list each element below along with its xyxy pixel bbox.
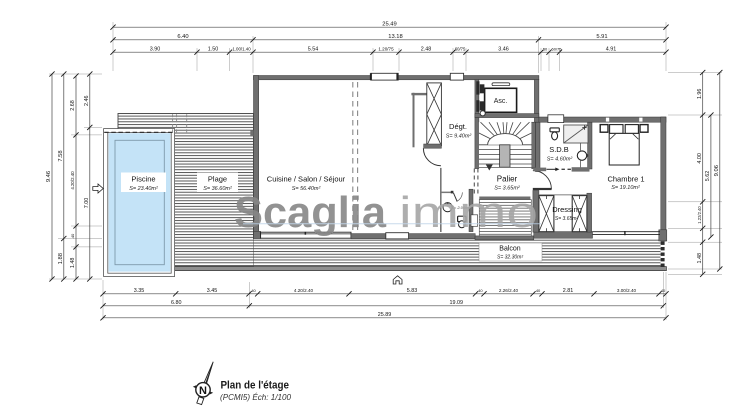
- svg-text:2.48: 2.48: [421, 46, 432, 52]
- svg-text:.40: .40: [660, 288, 666, 293]
- svg-text:Piscine: Piscine: [131, 175, 155, 184]
- svg-text:.40: .40: [70, 233, 75, 239]
- svg-text:3.00/2.40: 3.00/2.40: [617, 288, 637, 293]
- svg-text:3.45: 3.45: [207, 288, 218, 294]
- svg-text:7.58: 7.58: [58, 150, 64, 161]
- svg-text:3.46: 3.46: [498, 46, 509, 52]
- svg-text:9.06: 9.06: [714, 165, 720, 176]
- svg-text:1.50: 1.50: [208, 46, 219, 52]
- svg-text:1.48: 1.48: [70, 258, 76, 269]
- svg-text:Plage: Plage: [208, 175, 227, 184]
- svg-text:1.48: 1.48: [697, 253, 703, 264]
- svg-text:Asc.: Asc.: [494, 98, 508, 105]
- svg-text:.50: .50: [542, 46, 548, 51]
- svg-text:5.91: 5.91: [596, 34, 607, 40]
- svg-text:S= 32.30m²: S= 32.30m²: [497, 255, 523, 261]
- svg-text:5.83: 5.83: [407, 288, 418, 294]
- svg-text:6.40: 6.40: [177, 34, 188, 40]
- svg-text:.40: .40: [477, 288, 483, 293]
- svg-text:9.46: 9.46: [46, 171, 52, 182]
- svg-text:.60/75: .60/75: [454, 46, 466, 51]
- svg-text:4.20/2.40: 4.20/2.40: [294, 288, 314, 293]
- svg-text:2.81: 2.81: [563, 288, 574, 294]
- svg-text:Dégt.: Dégt.: [449, 122, 467, 131]
- svg-text:1.96: 1.96: [697, 89, 703, 100]
- svg-text:N: N: [199, 385, 207, 397]
- svg-text:(PCMI5) Éch: 1/100: (PCMI5) Éch: 1/100: [220, 393, 292, 402]
- svg-text:6.80: 6.80: [171, 300, 182, 306]
- svg-text:7.00: 7.00: [84, 198, 90, 209]
- svg-text:Plan de l'étage: Plan de l'étage: [221, 380, 290, 392]
- svg-text:5.54: 5.54: [308, 46, 319, 52]
- svg-text:19.09: 19.09: [450, 300, 464, 306]
- svg-text:4.20/2.40: 4.20/2.40: [70, 171, 75, 190]
- svg-text:5.62: 5.62: [705, 171, 711, 182]
- svg-text:.40: .40: [535, 288, 541, 293]
- svg-text:60/75: 60/75: [551, 46, 562, 51]
- svg-text:1.22/2.40: 1.22/2.40: [697, 206, 702, 224]
- svg-text:Scaglia: Scaglia: [234, 188, 387, 237]
- svg-text:S= 36.60m²: S= 36.60m²: [203, 186, 232, 192]
- svg-text:2.46: 2.46: [84, 95, 90, 106]
- svg-text:4.91: 4.91: [606, 46, 617, 52]
- svg-text:S= 4.60m²: S= 4.60m²: [547, 156, 573, 162]
- svg-text:3.90: 3.90: [150, 46, 161, 52]
- svg-text:S= 19.10m²: S= 19.10m²: [611, 185, 640, 191]
- svg-text:Balcon: Balcon: [499, 246, 521, 253]
- svg-text:S= 9.40m²: S= 9.40m²: [446, 134, 472, 140]
- svg-text:13.18: 13.18: [388, 34, 403, 40]
- svg-text:1.88: 1.88: [58, 253, 64, 264]
- svg-text:Chambre 1: Chambre 1: [607, 175, 644, 184]
- svg-text:25.89: 25.89: [378, 312, 392, 318]
- svg-text:2.26/2.40: 2.26/2.40: [499, 288, 519, 293]
- svg-text:Palier: Palier: [497, 175, 518, 184]
- svg-text:S= 23.40m²: S= 23.40m²: [129, 186, 158, 192]
- svg-text:S= 3.65m²: S= 3.65m²: [555, 216, 579, 222]
- svg-text:Dressing: Dressing: [552, 205, 582, 214]
- svg-text:3.35: 3.35: [134, 288, 145, 294]
- svg-text:Cuisine / Salon / Séjour: Cuisine / Salon / Séjour: [267, 175, 346, 184]
- svg-text:2.68: 2.68: [70, 100, 76, 111]
- svg-text:25.49: 25.49: [382, 21, 397, 27]
- svg-text:immo: immo: [399, 188, 538, 237]
- svg-text:S.D.B: S.D.B: [549, 145, 569, 154]
- svg-text:1.20/75: 1.20/75: [378, 46, 394, 51]
- svg-text:1.00/1.40: 1.00/1.40: [232, 46, 251, 51]
- svg-text:4.00: 4.00: [697, 153, 703, 164]
- svg-text:.40: .40: [250, 288, 256, 293]
